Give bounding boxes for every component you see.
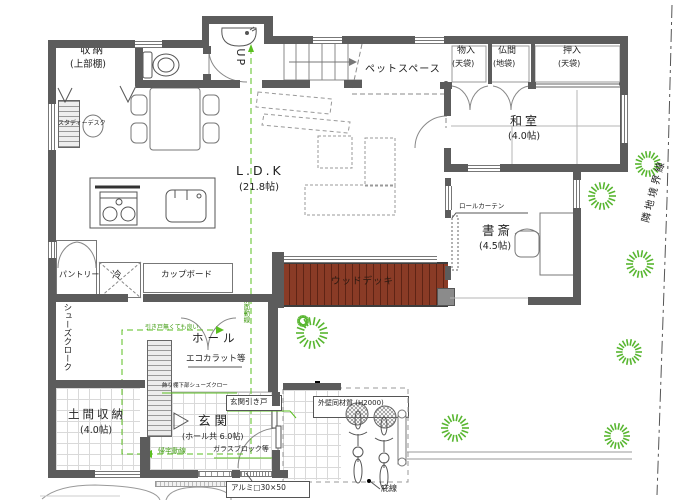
fridge-label: 冷 <box>112 271 122 281</box>
room-size-genkan: (ホール共 6.0帖) <box>182 433 244 441</box>
shrub-icon <box>588 182 616 210</box>
room-size-doma: (4.0帖) <box>80 426 112 436</box>
shosai-desk <box>515 213 574 275</box>
shoescloak-label: シューズクローク <box>62 303 71 371</box>
car-outline <box>40 485 231 500</box>
wall-segment <box>531 44 535 84</box>
stairs <box>284 44 362 80</box>
eaves-label: 庇線 <box>381 485 397 493</box>
closet-note-monoire: (天袋) <box>452 60 474 68</box>
wall-segment <box>202 16 272 24</box>
room-label-doma: 土間収納 <box>68 408 126 420</box>
wall-segment <box>278 470 288 478</box>
shrub-icon <box>616 339 642 365</box>
wall-segment <box>136 80 240 88</box>
closet-label-oshiire: 押入 <box>563 47 581 56</box>
glass-block-label: ガラスブロック等 <box>213 446 269 453</box>
cupboard-label: カップボード <box>161 271 212 280</box>
window <box>468 165 500 172</box>
wood-deck-label: ウッドデッキ <box>331 277 394 287</box>
wall-segment <box>162 40 205 48</box>
eaves-marker <box>315 381 380 489</box>
wall-segment <box>488 44 492 84</box>
closet-label-monoire: 物入 <box>457 47 475 56</box>
wall-segment <box>445 178 451 186</box>
room-label-pet: ペットスペース <box>365 65 441 76</box>
wall-segment <box>143 294 280 302</box>
window <box>135 41 162 48</box>
up-label: UP <box>235 48 247 67</box>
wall-segment <box>444 89 451 116</box>
wall-segment <box>528 82 536 89</box>
window <box>48 104 55 150</box>
wall-segment <box>344 80 362 88</box>
bicycle-icons <box>349 411 393 489</box>
shrub-icon <box>296 317 328 349</box>
closet-note-butsuma: (地袋) <box>493 60 515 68</box>
wall-segment <box>48 380 145 388</box>
no-sliding-door-note: 引き戸無くても良い <box>145 325 199 331</box>
wall-segment <box>202 16 209 46</box>
room-size-ldk: (21.8帖) <box>239 183 279 194</box>
closet-note-oshiire: (天袋) <box>558 60 580 68</box>
return-line-label: 帰宅動線 <box>158 448 186 455</box>
wall-segment <box>528 297 581 305</box>
shoe-shelf-label: 飾り棚下部シューズクロー <box>162 384 228 390</box>
boundary-line <box>657 5 672 495</box>
wall-segment <box>445 210 451 218</box>
shrub-icon <box>626 250 654 278</box>
outer-wall-label: 外壁同材質 (H2000) <box>318 400 384 407</box>
window <box>621 95 628 143</box>
room-label-hall: ホール <box>192 332 239 344</box>
wall-segment <box>55 40 135 48</box>
wall-segment <box>232 470 240 478</box>
room-label-shosai: 書斎 <box>482 224 513 237</box>
wall-segment <box>573 208 581 305</box>
fence <box>398 410 632 466</box>
pet-space-boundary <box>352 44 446 128</box>
window <box>284 256 437 263</box>
window <box>95 471 140 478</box>
wall-segment <box>283 383 341 390</box>
wall-segment <box>48 258 56 478</box>
window <box>415 37 444 44</box>
understair-storage <box>256 92 350 133</box>
wall-segment <box>272 392 280 406</box>
alumi-label: アルミ□30×50 <box>231 484 286 492</box>
room-label-washitsu: 和室 <box>510 115 540 128</box>
hanger-v-marks <box>58 86 136 102</box>
wall-segment <box>264 36 313 44</box>
closet-label-butsuma: 仏間 <box>498 47 516 56</box>
window <box>445 186 452 210</box>
room-note-shuno: (上部棚) <box>70 60 106 70</box>
wall-segment <box>268 300 278 392</box>
wall-segment <box>342 36 415 44</box>
window <box>48 242 55 258</box>
wall-segment <box>140 437 150 472</box>
shrub-icon <box>297 315 309 327</box>
window <box>313 37 342 44</box>
sofa <box>305 136 395 215</box>
window <box>573 180 580 208</box>
room-label-ldk: L.D.K <box>236 164 284 177</box>
wall-segment <box>500 164 628 172</box>
wall-segment <box>203 74 211 84</box>
study-desk-label: スタディーデスク <box>58 121 106 127</box>
washbasin-icon <box>222 27 256 46</box>
dining-set <box>131 88 219 150</box>
floor-plan: 収納 (上部棚) スタディーデスク UP ペットスペース 物入 (天袋) 仏間 … <box>0 0 700 500</box>
wall-segment <box>140 470 198 478</box>
room-label-genkan: 玄関 <box>198 414 231 427</box>
wall-segment <box>48 470 95 478</box>
room-size-shosai: (4.5帖) <box>479 242 511 252</box>
shrub-icon <box>604 423 630 449</box>
ecocarat-label: エコカラット等 <box>186 355 246 364</box>
roll-curtain-strip <box>452 216 458 270</box>
wall-segment <box>444 164 468 172</box>
toilet-icon <box>143 52 179 78</box>
wall-segment <box>48 40 56 104</box>
sliding-doors <box>272 406 281 448</box>
room-size-washitsu: (4.0帖) <box>508 132 540 142</box>
roll-curtain-label: ロールカーテン <box>459 203 504 210</box>
wall-segment <box>203 46 211 54</box>
wall-segment <box>445 266 451 280</box>
wall-segment <box>444 36 628 44</box>
wall-segment <box>573 172 581 180</box>
genkan-step-arrow <box>174 413 188 429</box>
wall-segment <box>440 82 452 89</box>
wall-segment <box>262 80 310 88</box>
wall-segment <box>48 150 56 242</box>
entrance-sliding-label: 玄関引き戸 <box>230 398 268 406</box>
wall-segment <box>48 294 128 302</box>
pantry-label: パントリー <box>59 271 99 279</box>
kitchen-island <box>90 178 215 228</box>
shrub-icon <box>441 414 469 442</box>
